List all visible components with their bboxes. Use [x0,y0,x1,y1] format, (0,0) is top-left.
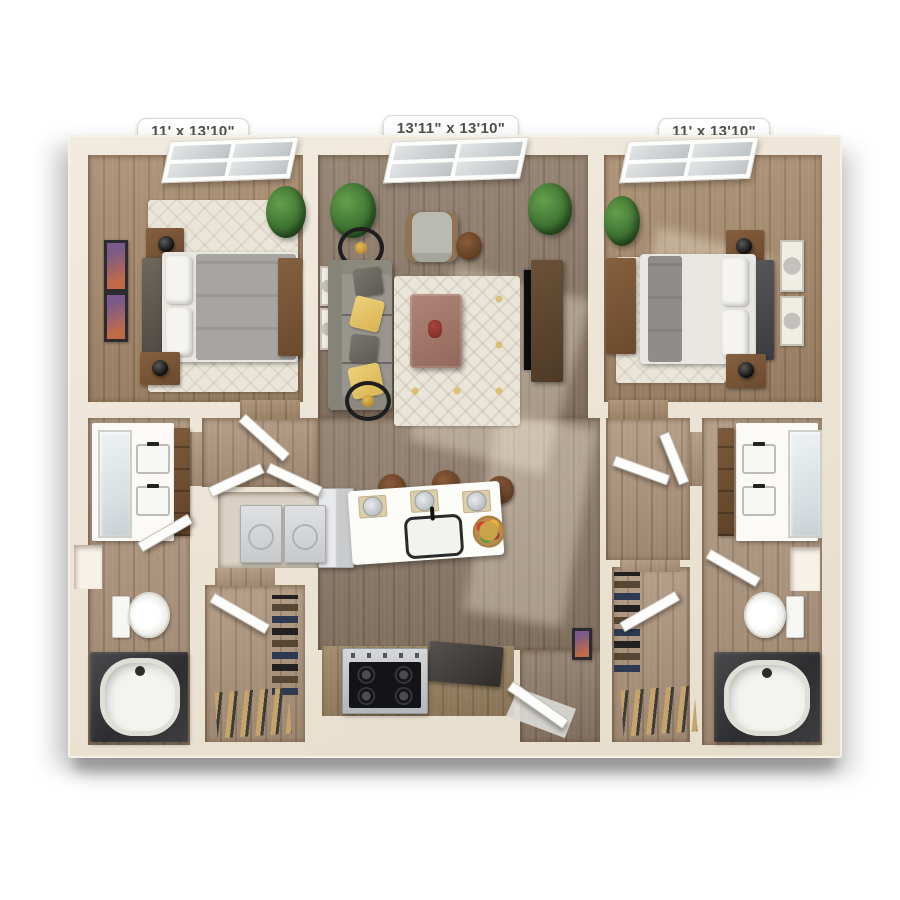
dresser [278,258,302,356]
doorway-bathroom-right [690,432,702,486]
kitchen-sink [404,514,465,560]
dryer [284,505,326,563]
washer [240,505,282,563]
stove-range [342,648,428,714]
toilet [128,592,170,638]
bathtub [100,658,180,736]
wall-art-frame [780,240,804,292]
window-pane [389,162,453,178]
bed-pillow [166,308,192,356]
window-pane [458,142,522,158]
linen-niche-right [790,547,820,591]
window-pane [629,144,690,160]
side-table [345,381,391,421]
window-pane [625,162,686,178]
table-decor-vase [428,320,442,338]
floor-plan-image: 11' x 13'10" 13'11" x 13'10" 11' x 13'10… [0,0,900,900]
doorway-closet-left [215,568,275,586]
shoe-rack [620,685,697,736]
hallway-right-floor [606,418,690,560]
vanity-mirror [788,430,822,538]
shoe-shelf [272,595,298,695]
sofa-pillow [349,334,380,365]
wall-art-frame [572,628,592,660]
window-bedroom-right [619,137,759,184]
table-lamp [738,362,754,378]
vanity-mirror [98,430,132,538]
apartment-plan [68,135,842,758]
potted-plant [266,186,306,238]
cooktop [349,662,421,708]
bed-blanket [648,256,682,362]
window-pane [688,160,749,176]
linen-niche-left [74,545,102,589]
window-pane [691,142,752,158]
doorway-bedroom-right [608,400,668,420]
fruit-bowl [472,515,506,549]
armchair [406,212,458,262]
window-living-room [383,137,529,184]
window-pane [229,160,289,176]
window-pane [167,162,227,178]
window-pane [232,142,292,158]
table-lamp [158,236,174,252]
doorway-closet-right [620,560,680,572]
shoe-rack [214,687,291,738]
ottoman [456,232,482,260]
bed-pillow [722,310,748,358]
tv-console [531,260,563,382]
counter-appliance [426,641,503,687]
window-bedroom-left [161,137,299,183]
bed-pillow [166,256,192,304]
potted-plant [528,183,572,235]
bathroom-cabinet [718,428,734,536]
bed-headboard [756,260,774,360]
sofa-pillow [352,266,384,298]
toilet [744,592,786,638]
dresser [606,258,636,354]
bed-pillow [722,258,748,306]
wall-art-frame [104,292,128,342]
bathroom-sink [742,486,776,516]
bathtub [724,660,810,736]
doorway-bathroom-left [190,432,202,486]
wall-art-frame [104,240,128,292]
wall-art-frame [780,296,804,346]
window-pane [393,144,457,160]
kitchen-island [348,481,505,565]
window-pane [455,160,519,176]
bed-headboard [142,258,162,360]
table-lamp [736,238,752,254]
table-lamp [152,360,168,376]
bathroom-sink [136,486,170,516]
bathroom-sink [136,444,170,474]
bathroom-sink [742,444,776,474]
potted-plant [604,196,640,246]
window-pane [171,144,231,160]
tv-screen [524,270,531,370]
toilet-tank [786,596,804,638]
